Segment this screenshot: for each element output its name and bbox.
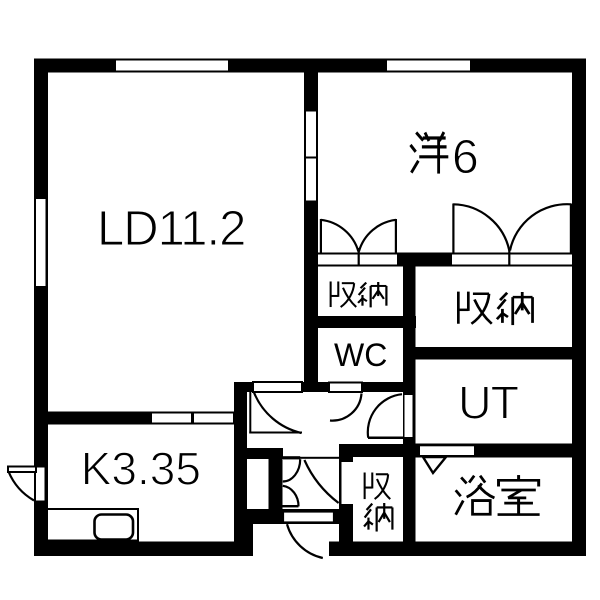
svg-text:LD11.2: LD11.2 <box>97 202 245 256</box>
svg-text:6: 6 <box>452 131 479 184</box>
svg-text:K3.35: K3.35 <box>81 442 201 494</box>
svg-text:UT: UT <box>458 376 519 428</box>
svg-text:WC: WC <box>334 337 387 373</box>
